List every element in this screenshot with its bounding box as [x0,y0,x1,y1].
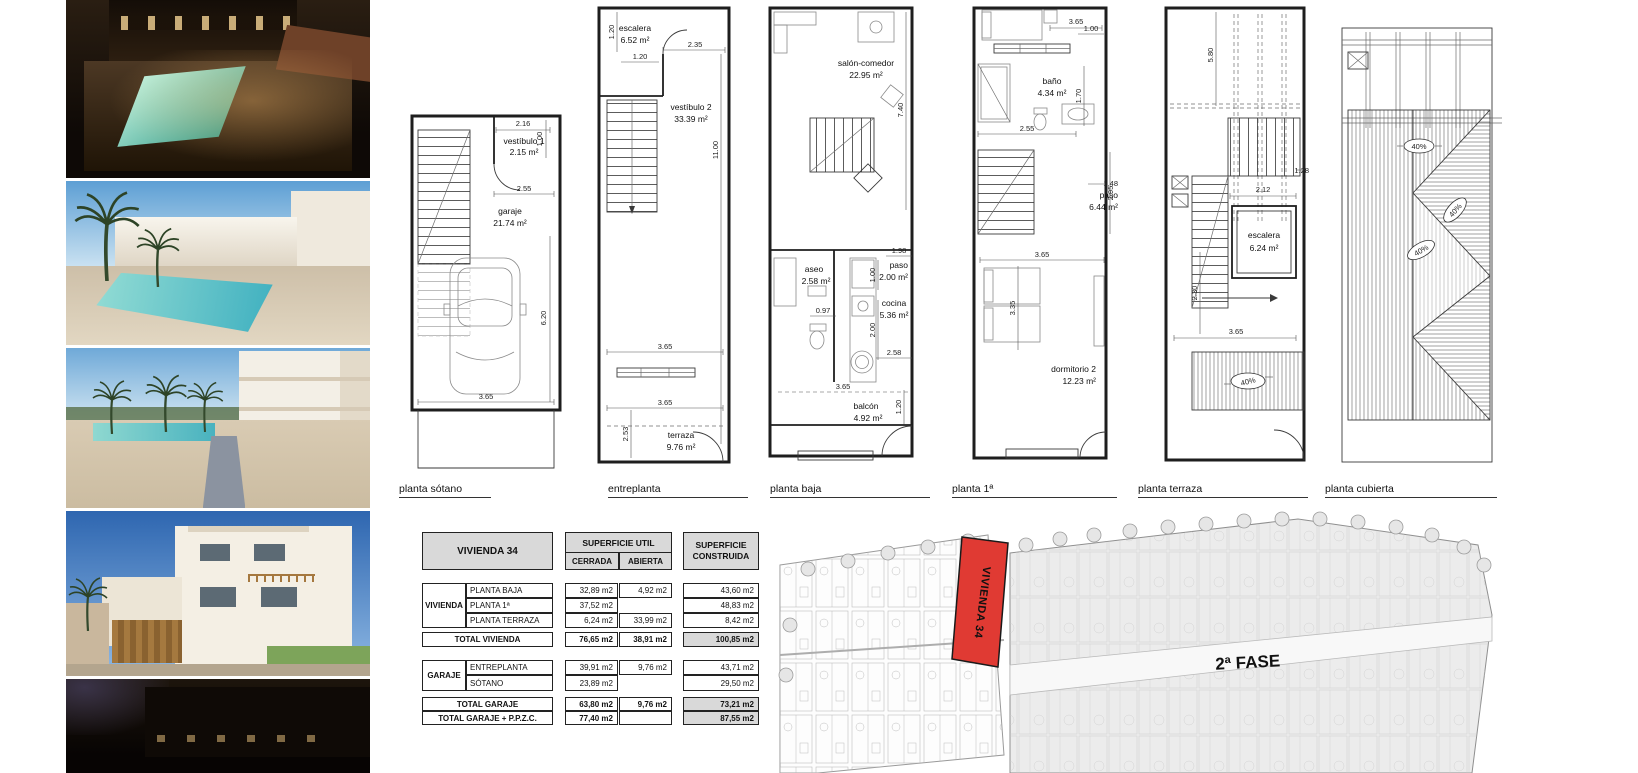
dim-text: 1.00 [1084,24,1099,33]
dim-text: 1.20 [894,400,903,415]
dim-text: 2.55 [1020,124,1035,133]
sofa [774,12,816,53]
plan-sheet: 2.16 vestíbulo 1 2.15 m² 1.00 2.55 garaj… [0,0,1638,773]
room-name: baño [1043,76,1062,86]
door-arc [1274,430,1304,460]
total-value: 87,55 m2 [683,711,759,725]
room-area: 6.24 m² [1250,243,1279,253]
photo-parapet [188,526,310,533]
value-cell: 23,89 m2 [565,675,618,691]
chimney-x [1348,52,1368,69]
total-label: TOTAL VIVIENDA [422,632,553,647]
room-area: 2.58 m² [802,276,831,286]
value-cell: 8,42 m2 [683,613,759,628]
room-area: 4.92 m² [854,413,883,423]
wardrobe [1094,276,1104,346]
phase-label: 2ª FASE [1215,651,1281,673]
plan-label-planta-1: planta 1ª [952,483,1117,498]
room-area: 22.95 m² [849,70,883,80]
row-label: SÓTANO [466,675,553,691]
total-value: 76,65 m2 [565,632,618,647]
dim-text: 3.65 [1035,250,1050,259]
dim-text: 2.53 [621,427,630,442]
value-cell: 48,83 m2 [683,598,759,613]
col-header-abierta: ABIERTA [619,552,672,570]
construida-header: SUPERFICIECONSTRUIDA [683,532,759,570]
photo-ground [66,664,370,676]
room-area: 2.15 m² [510,147,539,157]
dim-text: 2.30 [1190,286,1199,301]
room-name: garaje [498,206,522,216]
total-value: 38,91 m2 [619,632,672,647]
group-label-vivienda: VIVIENDA [422,583,466,628]
dim-text: 2.95 [1106,186,1115,201]
dim-text: 3.35 [1008,301,1017,316]
dim-text: 1.20 [633,52,648,61]
room-area: 5.36 m² [880,310,909,320]
total-value: 77,40 m2 [565,711,618,725]
row-label: PLANTA 1ª [466,598,553,613]
room-area: 2.00 m² [879,272,908,282]
dim-text: 3.65 [1069,17,1084,26]
plan-label-entreplanta: entreplanta [608,483,748,498]
dim-text: 1.00 [535,132,544,147]
chimney-boxes [1172,176,1188,207]
surface-table: VIVIENDA 34 SUPERFICIE UTIL CERRADA ABIE… [420,531,766,727]
dim-text: 7.40 [896,103,905,118]
palm-tree-icon [68,571,108,631]
room-name: escalera [1248,230,1280,240]
photo-window [200,587,236,607]
photo-garage-door [112,620,182,663]
dim-text: 2.16 [516,119,531,128]
palm-tree-icon [72,181,142,281]
bed [982,10,1057,40]
value-cell: 37,52 m2 [565,598,618,613]
col-header-cerrada: CERRADA [565,552,619,570]
dim-text: 1.98 [892,246,907,255]
dim-text: 2.55 [517,184,532,193]
dim-text: 3.65 [479,392,494,401]
plan-label-planta-terraza: planta terraza [1138,483,1308,498]
room-area: 4.34 m² [1038,88,1067,98]
floorplan-planta-sotano: 2.16 vestíbulo 1 2.15 m² 1.00 2.55 garaj… [398,106,574,480]
window-mullions [994,44,1070,53]
driveway-outline [418,410,554,468]
photo-window [254,544,284,561]
dim-text: 1.28 [1294,166,1309,175]
room-name: escalera [619,23,651,33]
partition [599,54,663,96]
wall-outline [599,8,729,462]
value-cell: 29,50 m2 [683,675,759,691]
photo-lit-windows [157,735,333,742]
room-name: dormitorio 2 [1051,364,1096,374]
floorplan-planta-terraza: 5.80 2.12 escalera 6.24 m² 1.28 2.30 3.6… [1136,0,1310,474]
row-label: PLANTA TERRAZA [466,613,553,628]
dim-text: 5.80 [1206,48,1215,63]
roof-hatching [1348,110,1490,420]
table-title: VIVIENDA 34 [422,532,553,570]
room-area: 12.23 m² [1062,376,1096,386]
photo-window [261,587,297,607]
dim-text: 6.20 [539,311,548,326]
photo-day-pool [66,181,370,345]
dim-text: 2.12 [1256,185,1271,194]
row-label: ENTREPLANTA [466,660,553,675]
plan-label-planta-cubierta: planta cubierta [1325,483,1497,498]
room-name: salón-comedor [838,58,894,68]
palm-tree-icon [92,374,132,434]
value-cell: 9,76 m2 [619,660,672,675]
room-area: 33.39 m² [674,114,708,124]
floorplan-planta-1: 3.65 baño 4.34 m² 1.00 2.55 1.70 1.48 pa… [950,0,1120,474]
dim-text: 11.00 [711,141,720,159]
photo-night-pool [66,0,370,178]
total-value: 100,85 m2 [683,632,759,647]
dim-text: 0.97 [816,306,831,315]
dim-text: 1.70 [1074,89,1083,104]
empty-cell [619,711,672,725]
rug [858,12,894,42]
stair-grid [1228,118,1300,176]
dim-text: 3.65 [658,342,673,351]
dim-text: 1.00 [868,268,877,283]
value-cell: 4,92 m2 [619,583,672,598]
window-mullions [617,368,695,377]
total-value: 9,76 m2 [619,697,672,711]
util-header: SUPERFICIE UTIL [566,533,671,552]
dim-text: 2.00 [868,323,877,338]
total-value: 63,80 m2 [565,697,618,711]
value-cell: 33,99 m2 [619,613,672,628]
door-arc [693,432,723,462]
photo-building [291,191,370,270]
room-area: 9.76 m² [667,442,696,452]
room-name: vestíbulo 2 [670,102,711,112]
palm-tree-icon [186,376,224,432]
photo-pool-walkway [66,348,370,508]
dim-text: 2.58 [887,348,902,357]
row-label: PLANTA BAJA [466,583,553,598]
door-arc [1080,432,1106,458]
floorplan-planta-baja: salón-comedor 22.95 m² 7.40 aseo 2.58 m²… [758,0,928,474]
stairwell-box [1232,206,1296,278]
value-cell: 6,24 m2 [565,613,618,628]
room-name: paso [890,260,909,270]
room-name: terraza [668,430,695,440]
photo-window [200,544,230,561]
stair-arrow [1270,294,1278,302]
dim-text: 2.35 [688,40,703,49]
value-cell: 43,60 m2 [683,583,759,598]
stairwell-box-inner [1237,211,1291,273]
plan-label-planta-baja: planta baja [770,483,930,498]
dim-text: 3.65 [658,398,673,407]
photo-building [145,687,370,758]
value-cell: 32,89 m2 [565,583,618,598]
photo-light-glow [90,50,351,171]
svg-text:40%: 40% [1411,142,1426,151]
value-cell: 43,71 m2 [683,660,759,675]
palm-tree-icon [136,221,180,287]
photo-dusk-street [66,679,370,773]
room-area: 21.74 m² [493,218,527,228]
floorplan-entreplanta: escalera 6.52 m² 1.20 1.20 2.35 11.00 ve… [585,0,745,474]
photo-townhouse-street [66,511,370,676]
site-plan: VIVIENDA 34 2ª FASE [778,505,1500,773]
stairs-dashed [418,264,470,336]
value-cell: 39,91 m2 [565,660,618,675]
plan-label-planta-sotano: planta sótano [399,483,491,498]
photo-lit-windows [121,16,297,30]
palm-tree-icon [144,368,188,432]
room-name: cocina [882,298,907,308]
door-arc [663,30,687,54]
dim-text: 3.65 [1229,327,1244,336]
dim-text: 3.65 [836,382,851,391]
dim-text: 1.20 [607,25,616,40]
door-arc [882,426,912,456]
total-label: TOTAL GARAJE + P.P.Z.C. [422,711,553,725]
room-name: aseo [805,264,824,274]
room-area: 6.52 m² [621,35,650,45]
floorplan-planta-cubierta: 40% 40% 40% [1322,0,1502,474]
total-value: 73,21 m2 [683,697,759,711]
photo-strip [66,0,370,773]
total-label: TOTAL GARAJE [422,697,553,711]
photo-balcony-rail [248,574,315,583]
room-name: balcón [853,401,878,411]
group-label-garaje: GARAJE [422,660,466,691]
side-table [870,21,882,33]
room-area: 6.44 m² [1089,202,1118,212]
